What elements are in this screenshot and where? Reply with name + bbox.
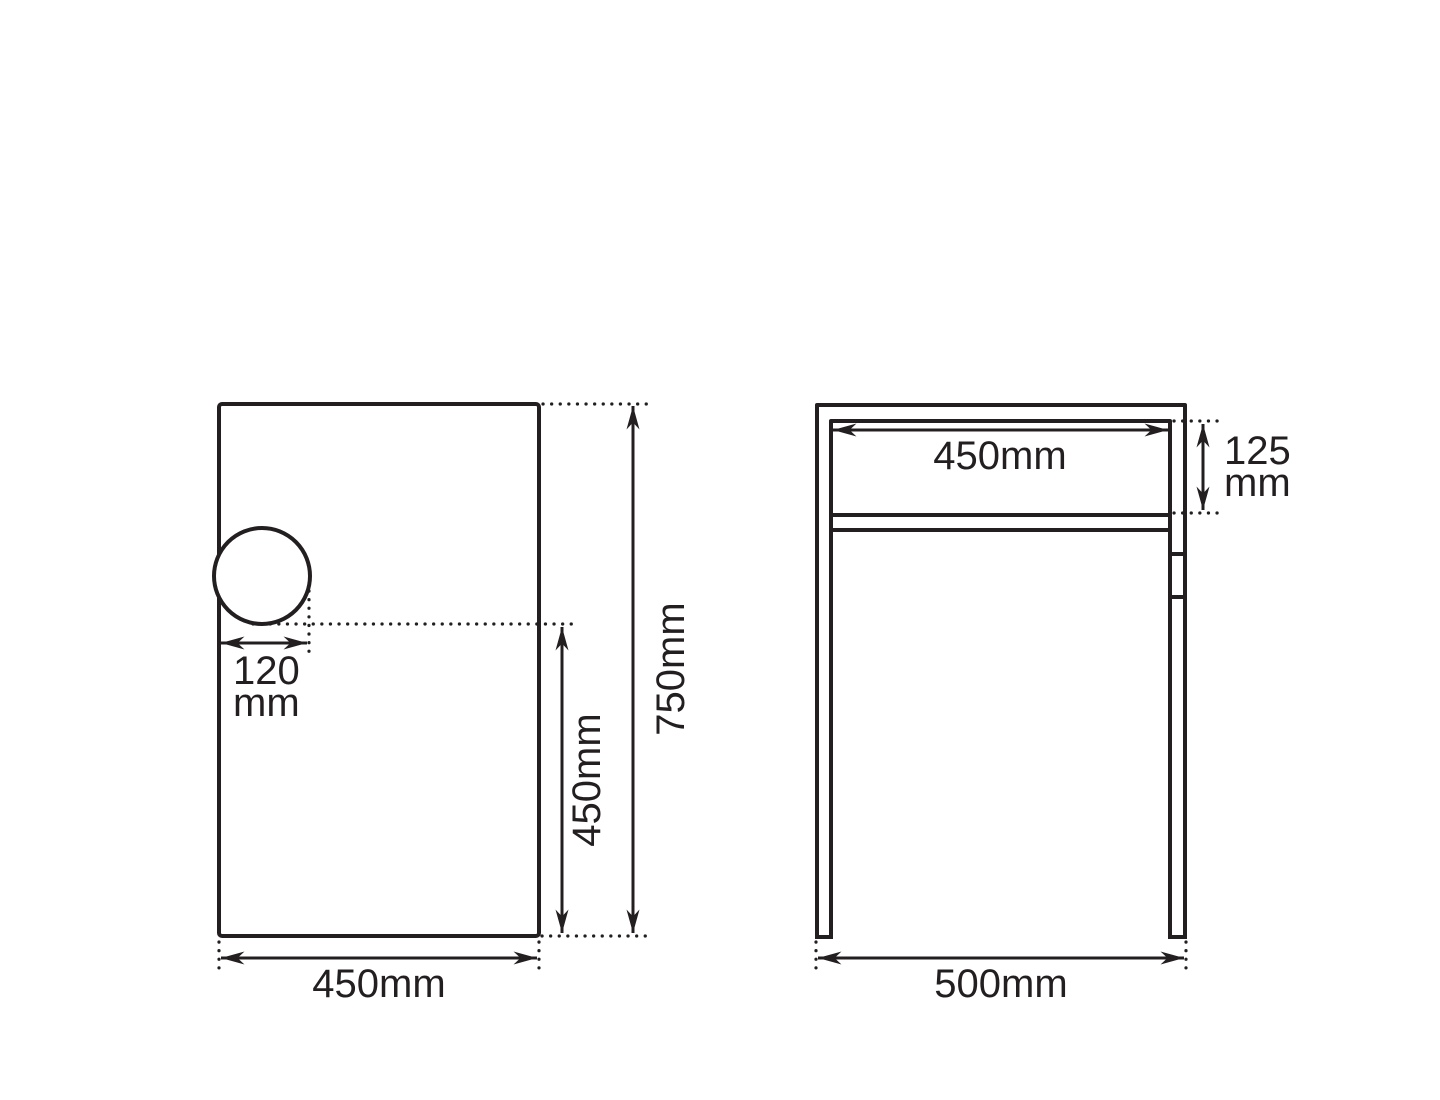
hole-offset-unit-label: mm bbox=[233, 681, 300, 725]
inner-width-label: 450mm bbox=[933, 434, 1066, 478]
technical-drawing-page: 120 mm 450mm 750mm 450mm bbox=[0, 0, 1440, 1100]
frame-inner-outline bbox=[831, 421, 1170, 937]
frame-outer-outline bbox=[817, 405, 1185, 937]
partial-height-label: 450mm bbox=[565, 713, 609, 846]
dimension-drawing: 120 mm 450mm 750mm 450mm bbox=[0, 0, 1440, 1100]
overall-width-label: 500mm bbox=[934, 962, 1067, 1006]
cable-hole-cutout bbox=[214, 528, 310, 624]
side-frame-view: 450mm 125 mm 500mm bbox=[815, 405, 1291, 1006]
overall-height-label: 750mm bbox=[649, 602, 693, 735]
apron-height-unit-label: mm bbox=[1224, 461, 1291, 505]
bottom-width-label: 450mm bbox=[312, 962, 445, 1006]
front-panel-view: 120 mm 450mm 750mm 450mm bbox=[214, 404, 693, 1006]
